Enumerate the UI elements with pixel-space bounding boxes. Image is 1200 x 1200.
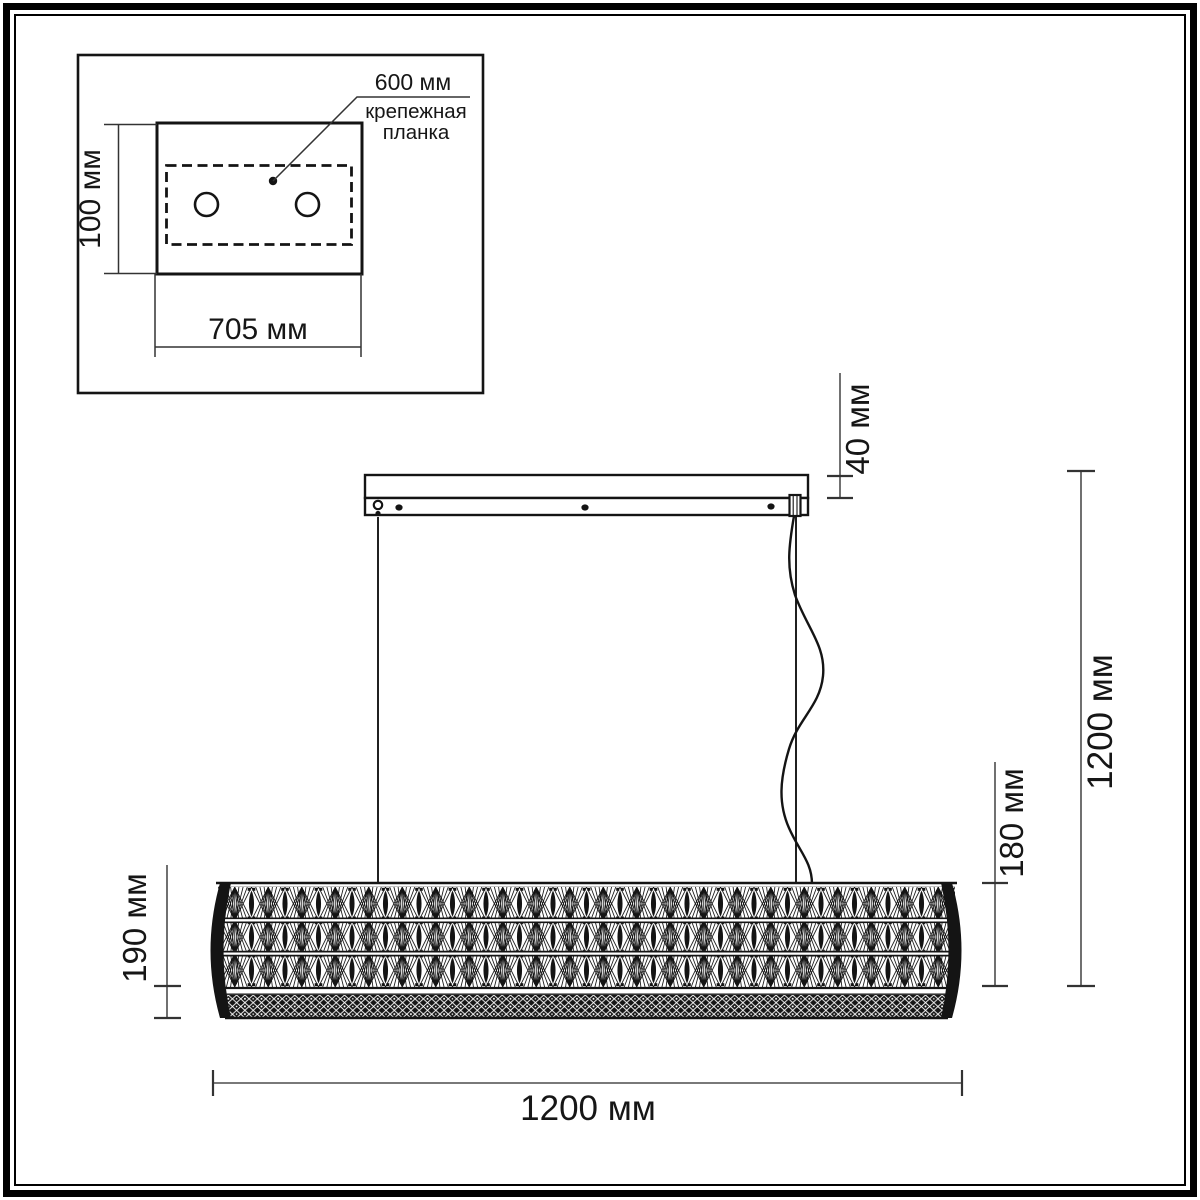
fixture-height-label: 190 мм (116, 873, 153, 983)
plate-name-line2: планка (383, 121, 450, 144)
holes-distance-label: 600 мм (375, 69, 451, 95)
canopy-height-label: 40 мм (839, 383, 876, 474)
dim-shade-height: 180 мм (982, 762, 1030, 986)
suspension-height-label: 1200 мм (1081, 654, 1120, 790)
ceiling-canopy (365, 475, 808, 498)
dim-suspension-height: 1200 мм (1067, 471, 1120, 986)
plate-name-line1: крепежная (365, 100, 467, 123)
plate-width-label: 705 мм (208, 313, 308, 346)
shade-crystal-fringe (220, 995, 951, 1018)
fixture-width-label: 1200 мм (520, 1089, 656, 1128)
shade-bottom-band (216, 987, 957, 995)
cable-gripper-nut (375, 511, 380, 516)
mounting-hole-right (296, 193, 319, 216)
shade-row-separator (218, 951, 955, 956)
dim-canopy-height: 40 мм (827, 373, 876, 498)
cable-gripper (374, 501, 382, 509)
mounting-hole-left (195, 193, 218, 216)
power-cord (781, 516, 823, 884)
dim-fixture-width: 1200 мм (213, 1070, 962, 1128)
crystal-shade (211, 883, 962, 1018)
main-drawing: 40 мм 1200 мм 180 мм 190 мм (116, 373, 1120, 1128)
plate-height-label: 100 мм (74, 149, 107, 249)
screw-left (395, 504, 402, 510)
inset-panel: 600 мм крепежная планка 100 мм 705 мм (74, 55, 483, 393)
shade-height-label: 180 мм (993, 768, 1030, 878)
cord-fitting (790, 495, 801, 516)
drawing-svg: 600 мм крепежная планка 100 мм 705 мм (0, 0, 1200, 1200)
shade-crystal-body (218, 887, 955, 987)
technical-drawing-page: 600 мм крепежная планка 100 мм 705 мм (0, 0, 1200, 1200)
dim-fixture-height: 190 мм (116, 865, 181, 1018)
mounting-plate (157, 123, 362, 274)
screw-center (581, 504, 588, 510)
shade-row-separator (218, 918, 955, 923)
screw-right (767, 503, 774, 509)
